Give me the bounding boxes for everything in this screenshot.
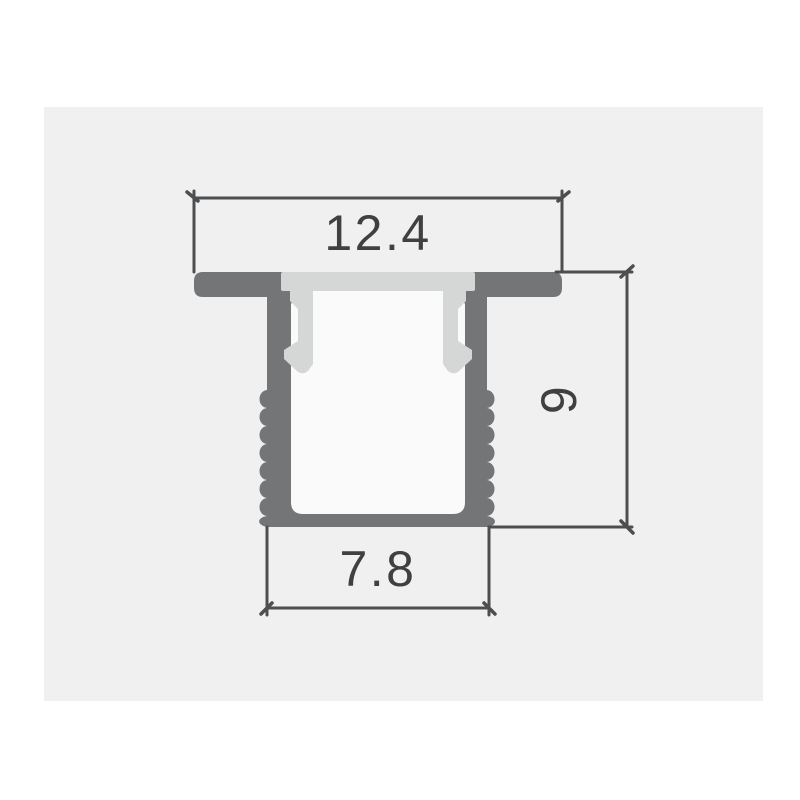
profile-technical-drawing: 12.4 9 7.8	[0, 0, 800, 800]
drawing-stage: 12.4 9 7.8	[0, 0, 800, 800]
channel-cavity	[291, 291, 465, 514]
top-width-label: 12.4	[324, 205, 431, 261]
bottom-width-label: 7.8	[339, 541, 416, 597]
diffuser-top-plate	[281, 272, 475, 291]
overall-height-label: 9	[531, 384, 587, 414]
